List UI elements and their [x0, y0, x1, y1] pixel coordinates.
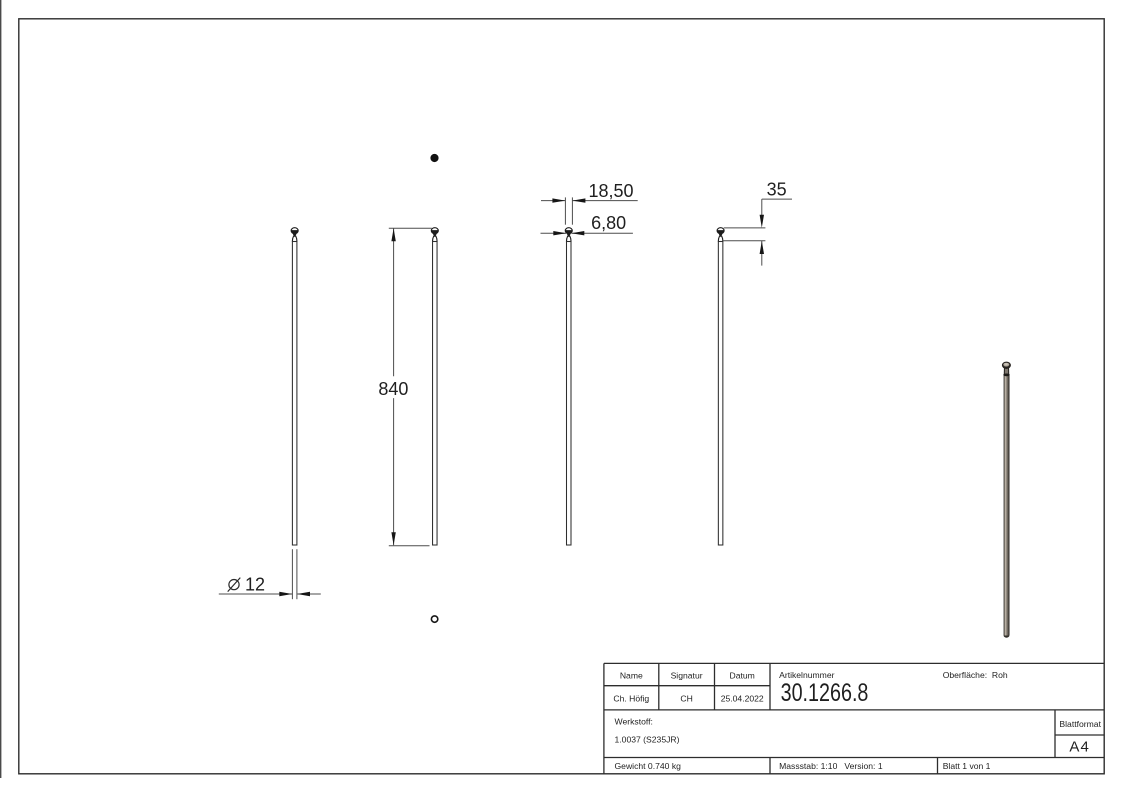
svg-text:CH: CH [680, 694, 692, 704]
svg-text:Massstab: 1:10: Massstab: 1:10 [779, 761, 837, 771]
svg-text:Blattformat: Blattformat [1059, 719, 1101, 729]
svg-text:18,50: 18,50 [588, 181, 633, 201]
svg-text:25.04.2022: 25.04.2022 [721, 694, 764, 704]
svg-text:Werkstoff:: Werkstoff: [615, 717, 653, 727]
svg-text:6,80: 6,80 [591, 213, 626, 233]
svg-text:Datum: Datum [730, 670, 755, 680]
svg-text:Blatt 1 von 1: Blatt 1 von 1 [943, 761, 991, 771]
svg-text:Version: 1: Version: 1 [844, 761, 882, 771]
svg-text:12: 12 [245, 575, 265, 595]
svg-text:30.1266.8: 30.1266.8 [781, 679, 869, 707]
svg-text:1.0037 (S235JR): 1.0037 (S235JR) [615, 735, 680, 745]
svg-text:Name: Name [620, 670, 643, 680]
svg-text:Oberfläche: Roh: Oberfläche: Roh [943, 670, 1008, 680]
svg-text:840: 840 [378, 379, 408, 399]
svg-text:Gewicht 0.740 kg: Gewicht 0.740 kg [615, 761, 682, 771]
svg-text:Signatur: Signatur [671, 670, 703, 680]
svg-text:A4: A4 [1069, 739, 1090, 756]
svg-text:Ch. Höfig: Ch. Höfig [613, 694, 649, 704]
svg-text:35: 35 [767, 180, 787, 200]
